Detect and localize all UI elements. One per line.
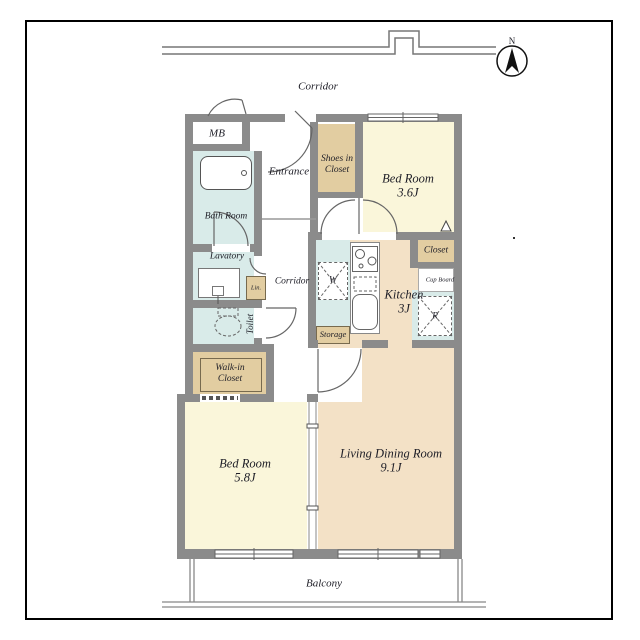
- mb-label: MB: [209, 128, 225, 141]
- lavatory-label: Lavatory: [210, 252, 244, 263]
- lavatory-door-arc: [250, 258, 266, 274]
- wic-label-line2: Closet: [215, 374, 244, 385]
- shoes-closet-label-line2: Closet: [321, 165, 353, 176]
- compass-icon: [497, 46, 527, 76]
- ldr-name: Living Dining Room: [340, 447, 442, 461]
- shoes-closet-door-arc: [321, 200, 355, 234]
- floor-plan: Corridor N MB Entrance Shoes in Closet B…: [0, 0, 640, 640]
- ldr-size: 9.1J: [340, 461, 442, 475]
- vent-triangle: [441, 221, 451, 231]
- kitchen-name: Kitchen: [385, 288, 424, 302]
- cupboard-label: Cup Board: [426, 276, 454, 283]
- fridge-label: R: [432, 312, 438, 323]
- mb-door-arc: [208, 99, 242, 116]
- stray-dot: [513, 237, 515, 239]
- closet-label: Closet: [424, 246, 448, 257]
- corridor-top-label: Corridor: [298, 81, 338, 94]
- wic-label-line1: Walk-in: [215, 363, 244, 374]
- kitchen-label: Kitchen 3J: [385, 288, 424, 317]
- walk-in-closet-label: Walk-in Closet: [215, 363, 244, 385]
- toilet-tank: [218, 308, 238, 316]
- floorplan-linework: [0, 0, 640, 640]
- bedroom2-label: Bed Room 5.8J: [219, 457, 271, 486]
- shoes-closet-label-line1: Shoes in: [321, 154, 353, 165]
- sliding-partition: [307, 402, 318, 549]
- balcony-label: Balcony: [306, 578, 342, 591]
- bedroom1-label: Bed Room 3.6J: [382, 172, 434, 201]
- corridor-outline: [162, 31, 496, 54]
- bedroom2-name: Bed Room: [219, 457, 271, 471]
- corridor-mid-label: Corridor: [275, 277, 309, 288]
- kitchen-size: 3J: [385, 302, 424, 316]
- compass-north-label: N: [509, 36, 516, 46]
- bedroom1-door-arc: [363, 200, 397, 234]
- entrance-label: Entrance: [269, 166, 309, 179]
- bedroom1-name: Bed Room: [382, 172, 434, 186]
- bedroom1-size: 3.6J: [382, 186, 434, 200]
- stove-burners: [356, 250, 377, 269]
- toilet-door-arc: [266, 308, 296, 338]
- living-dining-label: Living Dining Room 9.1J: [340, 447, 442, 476]
- toilet-label: Toilet: [245, 314, 255, 334]
- living-door-arc: [318, 349, 361, 392]
- linen-label: Lin.: [251, 284, 261, 291]
- shoes-closet-label: Shoes in Closet: [321, 154, 353, 176]
- tub-drain: [242, 171, 247, 176]
- bathroom-label: Bath Room: [205, 212, 247, 223]
- storage-label: Storage: [320, 330, 346, 340]
- toilet-bowl: [215, 316, 241, 336]
- washer-label: W: [329, 276, 337, 287]
- image-frame: [26, 21, 612, 619]
- door-arcs: [208, 99, 397, 392]
- bedroom2-size: 5.8J: [219, 471, 271, 485]
